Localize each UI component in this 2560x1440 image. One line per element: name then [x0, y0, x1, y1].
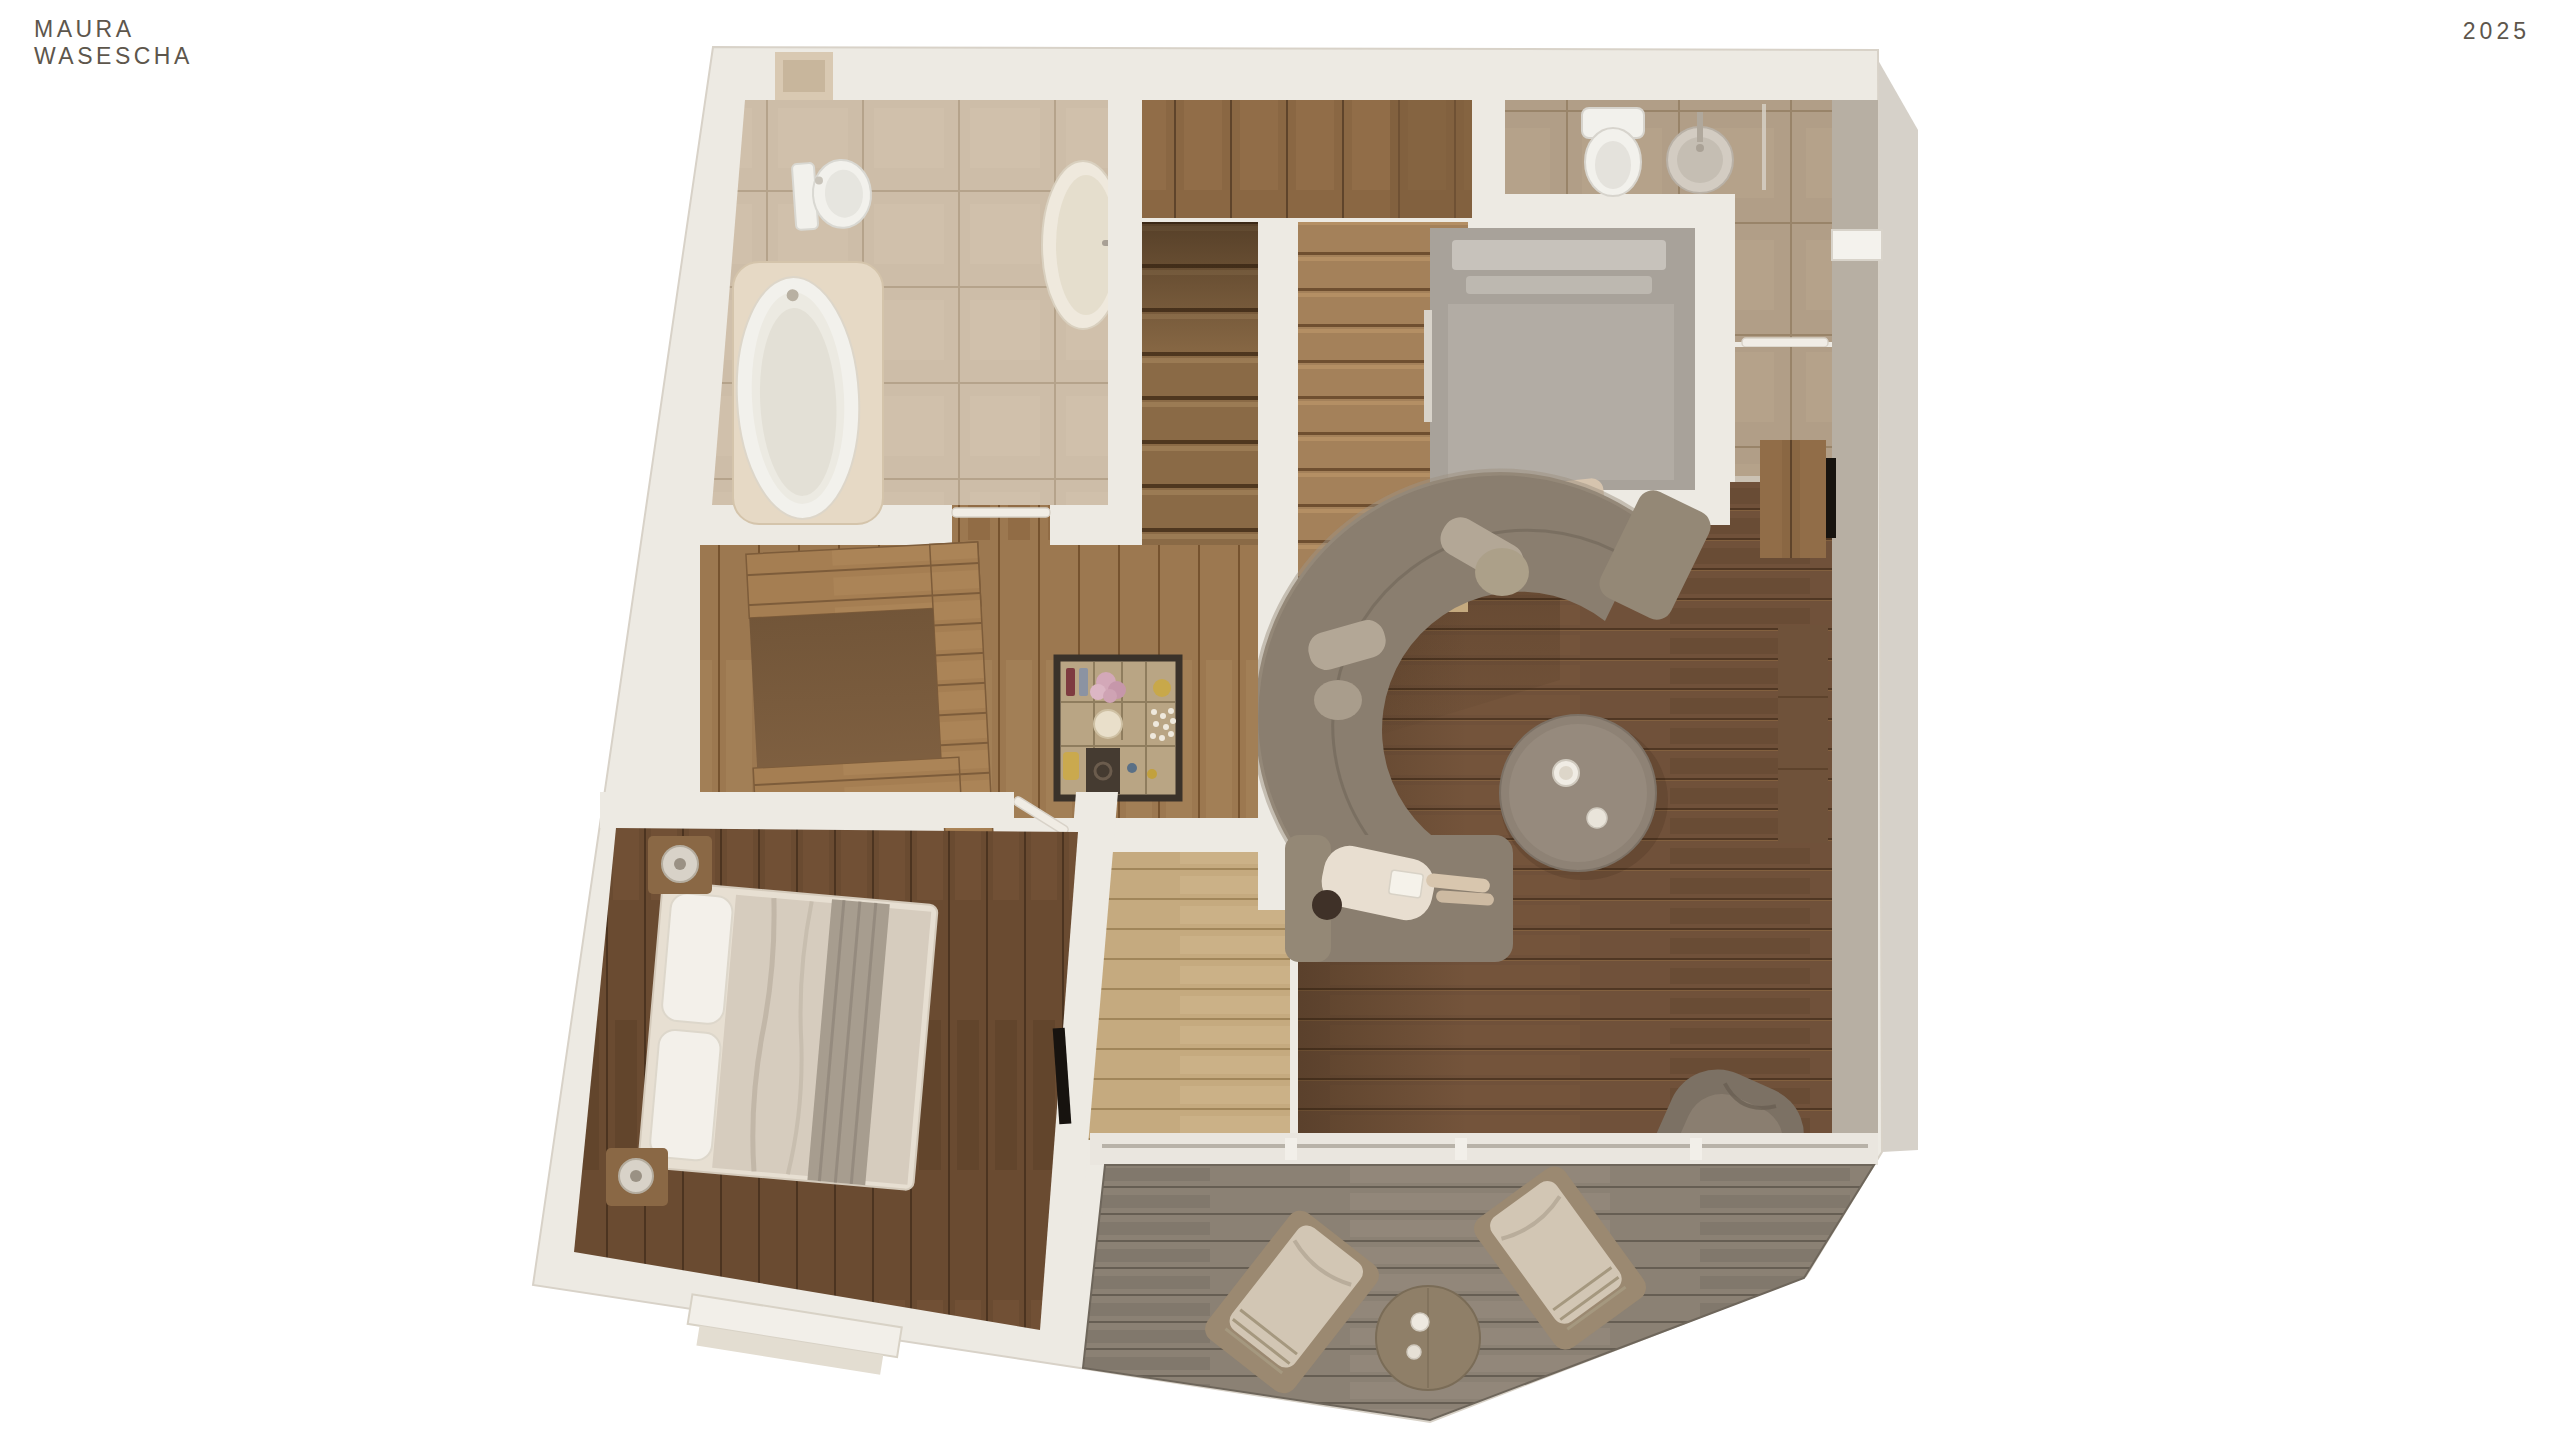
- terrace: [1083, 1161, 1874, 1420]
- cup-small: [1587, 808, 1607, 828]
- exterior-shadow: [1878, 60, 1918, 1152]
- bedroom-top-wall: [600, 792, 1014, 828]
- elevator-door: [1424, 310, 1432, 422]
- person-head: [1312, 890, 1342, 920]
- shower-floor-side: [1735, 194, 1832, 342]
- bathroom: [712, 100, 1124, 545]
- watch: [1063, 752, 1079, 780]
- cup: [1411, 1313, 1429, 1331]
- tv-panel: [1826, 458, 1836, 538]
- shower-floor-top: [1505, 100, 1832, 194]
- pillow: [661, 892, 734, 1025]
- wardrobe-cabinet-panel: [1390, 100, 1472, 218]
- elevator-machine-rail: [1466, 276, 1652, 294]
- bed: [638, 881, 938, 1190]
- cup: [1407, 1345, 1421, 1359]
- elevator-machine: [1452, 240, 1666, 270]
- shower-glass: [1762, 104, 1766, 190]
- terrace-side-table: [1376, 1286, 1480, 1390]
- dark-compartment: [1086, 748, 1120, 794]
- presentation-slide: MAURA WASESCHA 2025: [0, 0, 2560, 1440]
- corridor-floor-lower: [1080, 910, 1290, 1140]
- right-wall-window: [1832, 230, 1882, 260]
- media-cabinet: [1760, 440, 1836, 558]
- bathroom-stair-wall: [1108, 100, 1142, 545]
- nightstand: [648, 836, 712, 894]
- perfume-bottle: [1153, 679, 1171, 697]
- sideboard: [1778, 625, 1828, 843]
- nightstand: [606, 1148, 668, 1206]
- wall-hung-wc: [1582, 108, 1644, 196]
- lipstick: [1066, 668, 1075, 696]
- stair-shadow: [1142, 222, 1258, 362]
- pillow: [649, 1029, 722, 1162]
- ring-dish: [1094, 710, 1122, 738]
- terrace-deck: [1083, 1165, 1874, 1420]
- shower-door: [1742, 338, 1828, 347]
- elevator-cab-floor: [1448, 304, 1674, 480]
- toilet: [792, 158, 874, 231]
- bathroom-door: [952, 505, 1050, 545]
- jewelry-box: [1057, 658, 1179, 798]
- wall-niche-inner: [783, 60, 825, 92]
- book: [1388, 870, 1423, 898]
- floor-plan: [0, 0, 2560, 1440]
